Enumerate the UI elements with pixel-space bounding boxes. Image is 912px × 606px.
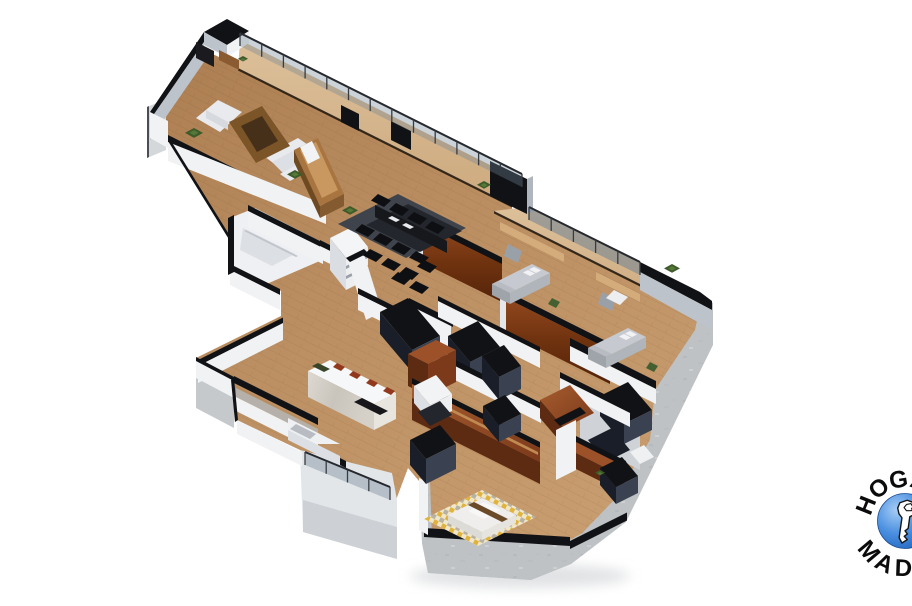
svg-text:D: D	[894, 555, 912, 583]
